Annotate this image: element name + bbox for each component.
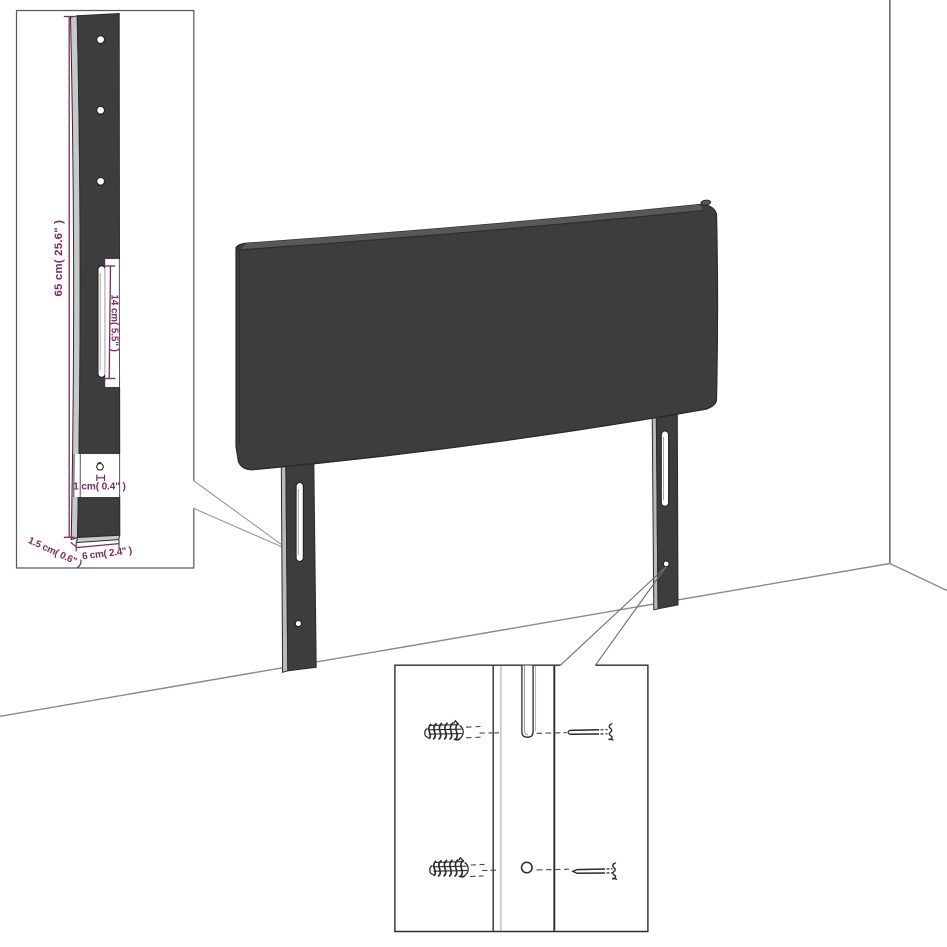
svg-text:14 cm( 5.5" ): 14 cm( 5.5" ) (109, 295, 120, 352)
svg-text:65 cm( 25.6" ): 65 cm( 25.6" ) (53, 220, 65, 297)
svg-text:1 cm( 0.4" ): 1 cm( 0.4" ) (73, 482, 125, 493)
